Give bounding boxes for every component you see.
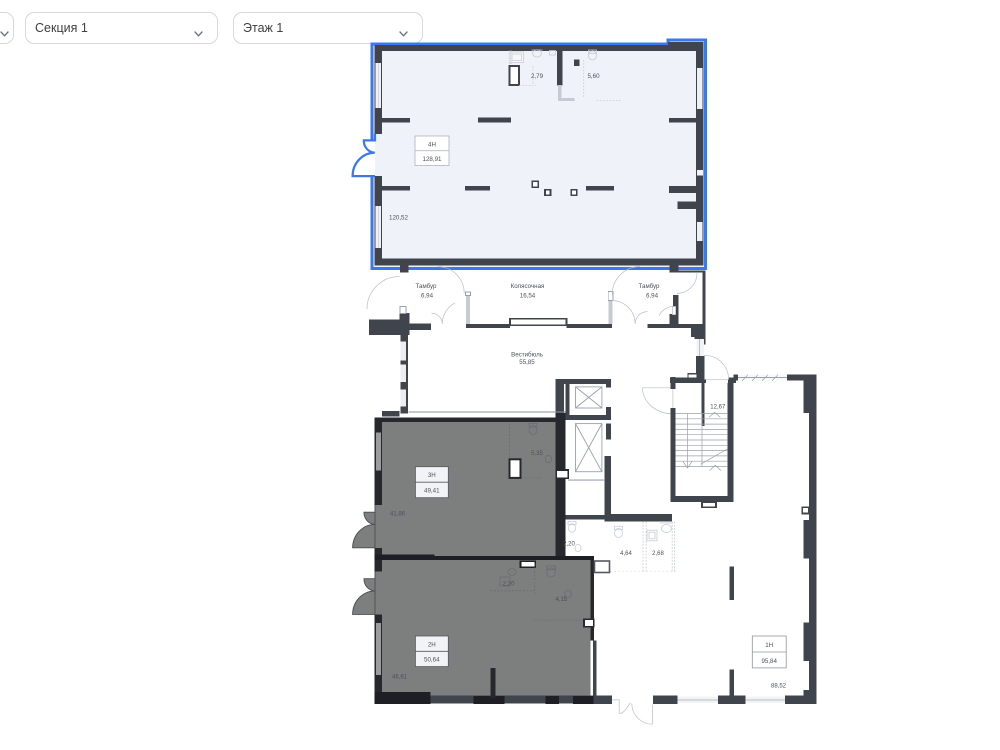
- svg-text:4,64: 4,64: [620, 551, 632, 557]
- svg-text:41,86: 41,86: [390, 512, 406, 518]
- svg-text:2,20: 2,20: [503, 582, 515, 588]
- svg-text:4,15: 4,15: [555, 597, 567, 603]
- svg-text:6,94: 6,94: [646, 293, 659, 300]
- svg-text:6,94: 6,94: [421, 293, 434, 300]
- svg-text:Тамбур: Тамбур: [416, 283, 438, 290]
- svg-text:16,54: 16,54: [520, 293, 536, 300]
- svg-text:128,91: 128,91: [423, 156, 442, 163]
- svg-text:12,67: 12,67: [710, 405, 726, 411]
- svg-text:2Н: 2Н: [428, 641, 436, 648]
- svg-text:Тамбур: Тамбур: [639, 283, 661, 290]
- svg-text:2,20: 2,20: [563, 541, 575, 547]
- svg-text:5,35: 5,35: [531, 451, 543, 457]
- svg-text:49,41: 49,41: [424, 488, 440, 495]
- svg-text:4Н: 4Н: [428, 142, 436, 149]
- svg-text:Вестибюль: Вестибюль: [511, 352, 543, 359]
- svg-text:46,61: 46,61: [392, 675, 408, 681]
- svg-text:50,64: 50,64: [424, 657, 440, 664]
- svg-text:2,79: 2,79: [531, 73, 544, 80]
- svg-text:88,52: 88,52: [771, 684, 787, 690]
- svg-text:Колясочная: Колясочная: [511, 283, 545, 290]
- svg-text:95,84: 95,84: [761, 658, 777, 665]
- svg-text:1Н: 1Н: [765, 642, 773, 649]
- svg-text:3Н: 3Н: [428, 472, 436, 479]
- svg-text:120,52: 120,52: [389, 215, 408, 222]
- svg-text:55,85: 55,85: [519, 359, 535, 366]
- svg-text:5,60: 5,60: [587, 73, 600, 80]
- svg-text:2,68: 2,68: [652, 551, 664, 557]
